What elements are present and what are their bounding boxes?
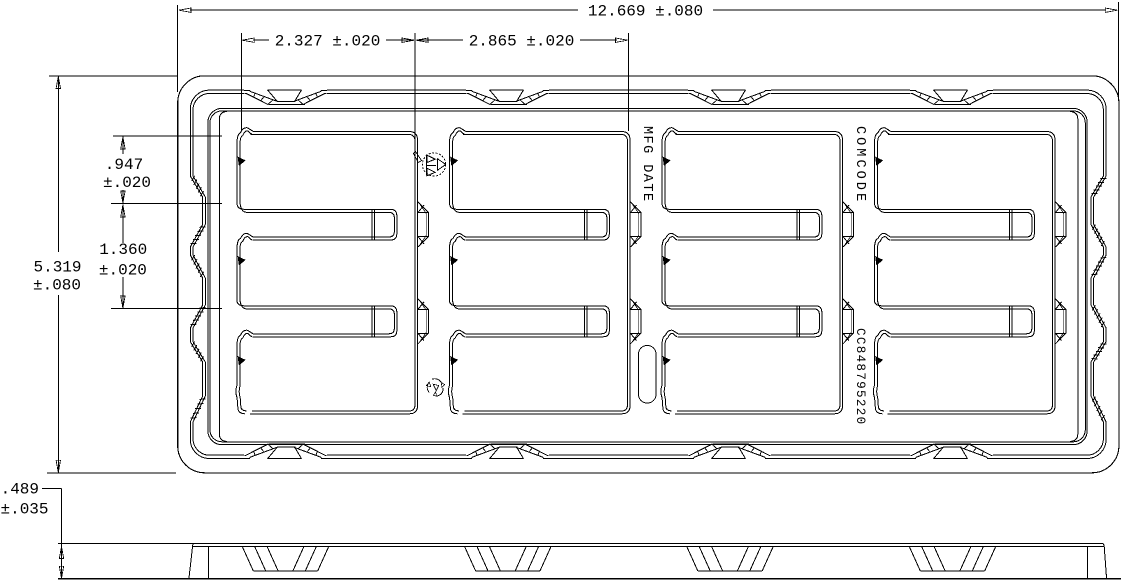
svg-text:±.035: ±.035 — [0, 501, 48, 519]
svg-text:COMCODE: COMCODE — [852, 126, 867, 204]
svg-text:1.360: 1.360 — [99, 241, 147, 259]
svg-text:MFG DATE: MFG DATE — [639, 126, 654, 202]
svg-text:±.080: ±.080 — [33, 277, 81, 295]
svg-text:5.319: 5.319 — [33, 259, 81, 277]
svg-text:.947: .947 — [105, 156, 143, 174]
svg-text:12.669 ±.080: 12.669 ±.080 — [588, 3, 703, 21]
svg-text:±.020: ±.020 — [99, 262, 147, 280]
svg-text:CC848795220: CC848795220 — [853, 328, 867, 425]
svg-text:2.865 ±.020: 2.865 ±.020 — [469, 33, 575, 51]
svg-text:±.020: ±.020 — [103, 174, 151, 192]
svg-text:.489: .489 — [1, 481, 39, 499]
svg-text:2.327 ±.020: 2.327 ±.020 — [275, 33, 381, 51]
